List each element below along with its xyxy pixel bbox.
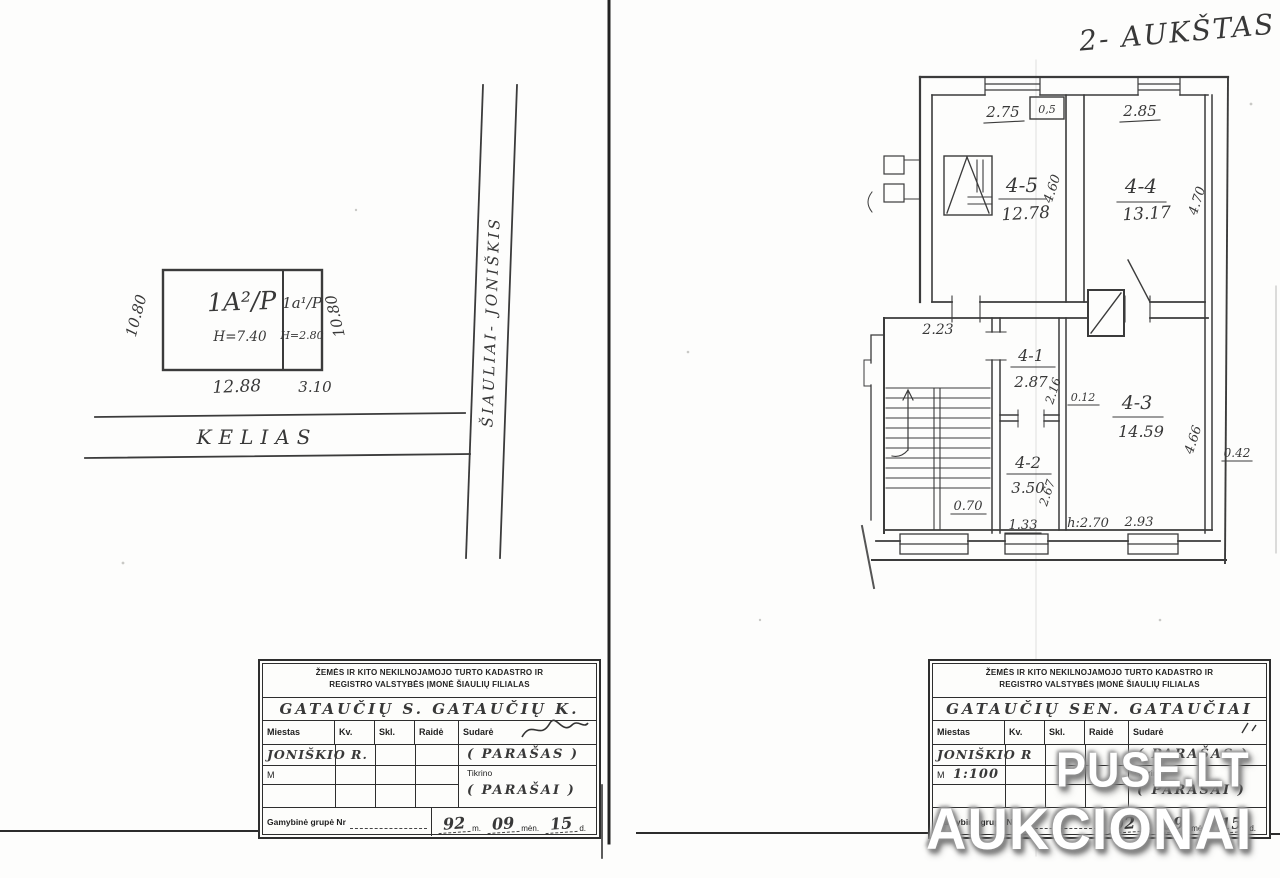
- room43-area: 14.59: [1118, 422, 1164, 441]
- stamp-column-headers: Miestas Kv. Skl. Raidė Sudarė: [263, 721, 596, 745]
- col-kv: Kv.: [1005, 721, 1045, 744]
- highway-label: ŠIAULIAI- JONIŠKIS: [478, 216, 503, 428]
- stamp-header-line2: REGISTRO VALSTYBĖS ĮMONĖ ŠIAULIŲ FILIALA…: [933, 679, 1266, 691]
- room43-bottom-dim: 2.93: [1124, 515, 1154, 530]
- road-kelias-label: KELIAS: [196, 425, 318, 449]
- floor-plan: 2- AUKŠTAS 2.75 2.85 0,5 4-5 12.78 4.60 …: [862, 7, 1277, 588]
- room45-top-dim: 2.75: [985, 103, 1019, 121]
- dim-left-side: 10.80: [122, 292, 151, 339]
- date-cell: 92 m. 09 mėn. 15 d.: [432, 808, 596, 836]
- paper-specks: [122, 103, 1253, 622]
- window-bottom-1: [900, 534, 968, 554]
- stamp-header-line1: ŽEMĖS IR KITO NEKILNOJAMOJO TURTO KADAST…: [263, 667, 596, 679]
- signature-parasai: ( PARAŠAI ): [459, 781, 596, 807]
- room45-id: 4-5: [1005, 173, 1038, 197]
- col-skl: Skl.: [375, 721, 415, 744]
- thin-wall-dim: 0.12: [1071, 391, 1096, 404]
- dim-right-side: 10.80: [321, 293, 348, 339]
- blank-line: [350, 816, 427, 829]
- date-month-suffix: mėn.: [521, 824, 539, 833]
- stamp-body-left: JONIŠKIO R. M: [263, 745, 459, 807]
- outer-wall-dim: 0.42: [1224, 446, 1251, 460]
- stamp-header: ŽEMĖS IR KITO NEKILNOJAMOJO TURTO KADAST…: [933, 664, 1266, 698]
- room43-side-dim: 4.66: [1182, 424, 1206, 457]
- scale-label: M: [937, 770, 945, 780]
- signature-scribble: [516, 715, 592, 745]
- date-day: 15: [545, 815, 578, 834]
- date-day-suffix: d.: [579, 824, 586, 833]
- dim-bottom-main: 12.88: [212, 376, 262, 398]
- signature-parasas: ( PARAŠAS ): [459, 745, 596, 766]
- room45-area: 12.78: [1001, 203, 1051, 226]
- room44-id: 4-4: [1124, 174, 1157, 198]
- room45-side-dim: 4.60: [1041, 173, 1065, 206]
- window-bottom-3: [1128, 534, 1178, 554]
- main-building-height: H=7.40: [212, 329, 267, 345]
- scanned-cadastral-document: 1A²/P H=7.40 1a¹/P H=2.80 12.88 3.10 10.…: [0, 0, 1280, 878]
- title-block-left-inner: ŽEMĖS IR KITO NEKILNOJAMOJO TURTO KADAST…: [262, 663, 597, 835]
- col-miestas: Miestas: [263, 721, 335, 744]
- stamp-header: ŽEMĖS IR KITO NEKILNOJAMOJO TURTO KADAST…: [263, 664, 596, 698]
- stamp-bottom-row: Gamybinė grupė Nr 92 m. 09 mėn. 15 d.: [263, 808, 596, 836]
- room42-bottom-dim: 1.33: [1009, 518, 1038, 533]
- stamp-header-line1: ŽEMĖS IR KITO NEKILNOJAMOJO TURTO KADAST…: [933, 667, 1266, 679]
- window-bottom-2: [1005, 534, 1048, 554]
- stair-top-dim: 2.23: [921, 322, 953, 338]
- title-block-left: ŽEMĖS IR KITO NEKILNOJAMOJO TURTO KADAST…: [258, 659, 601, 839]
- date-year: 92: [437, 815, 470, 834]
- staircase: [884, 318, 1006, 533]
- col-miestas: Miestas: [933, 721, 1005, 744]
- vent-label: 0,5: [1038, 103, 1056, 116]
- stamp-body-right: ( PARAŠAS ) Tikrino ( PARAŠAI ): [459, 745, 596, 807]
- room42-id: 4-2: [1014, 453, 1041, 472]
- stamp-body: JONIŠKIO R. M ( PARAŠAS ) Tikrino ( PARA…: [263, 745, 596, 808]
- entrance-details: [862, 335, 884, 588]
- room44-area: 13.17: [1122, 203, 1172, 226]
- stair-bottom-dim: 0.70: [954, 499, 983, 514]
- building-outline: [163, 270, 322, 370]
- room41-id: 4-1: [1017, 346, 1044, 365]
- window-top-1: [985, 77, 1040, 95]
- window-top-2: [1138, 77, 1180, 95]
- main-building-code: 1A²/P: [207, 286, 278, 317]
- cupboard: [868, 156, 992, 215]
- city-value: JONIŠKIO R.: [263, 745, 458, 766]
- floor-title: 2- AUKŠTAS: [1077, 7, 1277, 58]
- col-kv: Kv.: [335, 721, 375, 744]
- scale-value: 1:100: [953, 767, 999, 782]
- production-group-label: Gamybinė grupė Nr: [267, 817, 346, 827]
- annex-height: H=2.80: [279, 329, 323, 342]
- room43-height-note: h:2.70: [1067, 516, 1109, 531]
- chimney: [1088, 290, 1124, 336]
- empty-cell: [263, 785, 458, 807]
- scale-label: M: [267, 770, 275, 780]
- date-month: 09: [486, 815, 519, 834]
- site-plan: 1A²/P H=7.40 1a¹/P H=2.80 12.88 3.10 10.…: [85, 85, 517, 558]
- stamp-header-line2: REGISTRO VALSTYBĖS ĮMONĖ ŠIAULIŲ FILIALA…: [263, 679, 596, 691]
- watermark-aukcionai: AUKCIONAI: [926, 795, 1252, 863]
- room43-id: 4-3: [1121, 392, 1153, 414]
- tikrino-label: Tikrino: [459, 766, 596, 781]
- dim-bottom-annex: 3.10: [298, 378, 332, 396]
- page-divider: [602, 0, 609, 858]
- date-year-suffix: m.: [472, 824, 481, 833]
- watermark-puse-lt: PUSE.LT: [1056, 741, 1250, 798]
- col-raide: Raidė: [415, 721, 459, 744]
- signature-tick: [1202, 715, 1262, 741]
- room44-top-dim: 2.85: [1122, 102, 1156, 120]
- annex-code: 1a¹/P: [282, 294, 323, 312]
- production-group-cell: Gamybinė grupė Nr: [263, 808, 432, 836]
- room41-area: 2.87: [1013, 373, 1048, 391]
